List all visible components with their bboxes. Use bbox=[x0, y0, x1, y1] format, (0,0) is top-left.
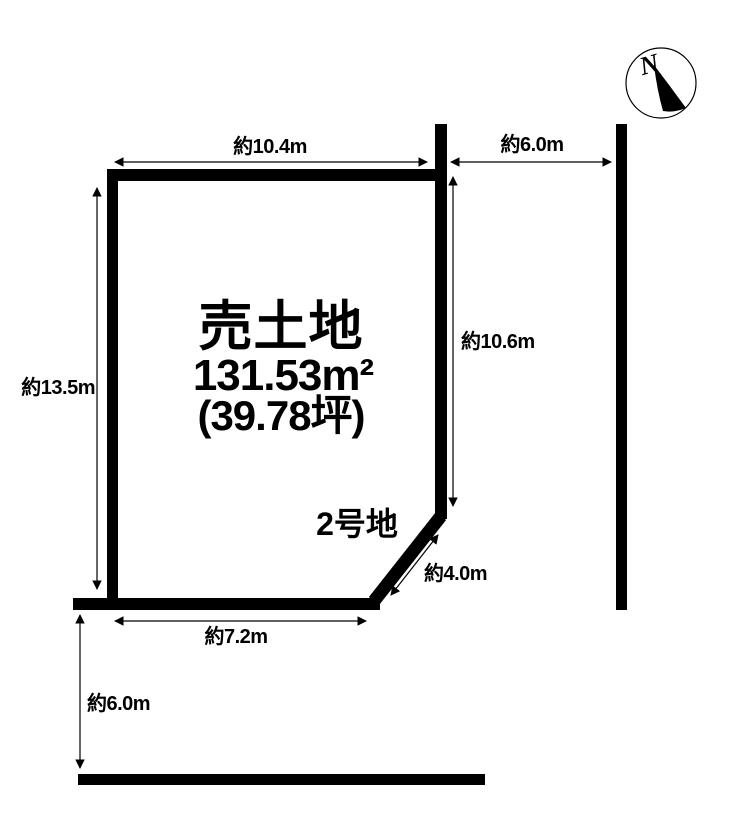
dimension-label-east-road-width: 約6.0m bbox=[500, 135, 563, 156]
south-road-near-edge bbox=[73, 598, 380, 610]
dimension-label-north-width: 約10.4m bbox=[233, 137, 307, 158]
east-road-far-edge bbox=[616, 124, 627, 610]
plot-north-boundary bbox=[107, 169, 447, 181]
south-road-far-edge bbox=[78, 774, 485, 785]
plot-area-tsubo: (39.78坪) bbox=[197, 394, 364, 438]
dimension-label-south-road-width: 約6.0m bbox=[87, 694, 150, 715]
land-plot-diagram: N 約10.4m 約6.0m 約13.5m 約10.6m 約4.0m 約7.2m… bbox=[0, 0, 740, 824]
plot-title: 売土地 bbox=[199, 299, 364, 356]
dimension-label-corner-cut: 約4.0m bbox=[424, 564, 487, 585]
plot-east-boundary bbox=[435, 124, 447, 519]
dimension-label-west-depth: 約13.5m bbox=[21, 378, 95, 399]
dimension-label-south-width: 約7.2m bbox=[204, 627, 267, 648]
plot-west-boundary bbox=[107, 169, 118, 610]
dimension-label-east-depth: 約10.6m bbox=[461, 332, 535, 353]
compass: N bbox=[626, 48, 696, 118]
plot-lot-number: 2号地 bbox=[316, 508, 398, 542]
